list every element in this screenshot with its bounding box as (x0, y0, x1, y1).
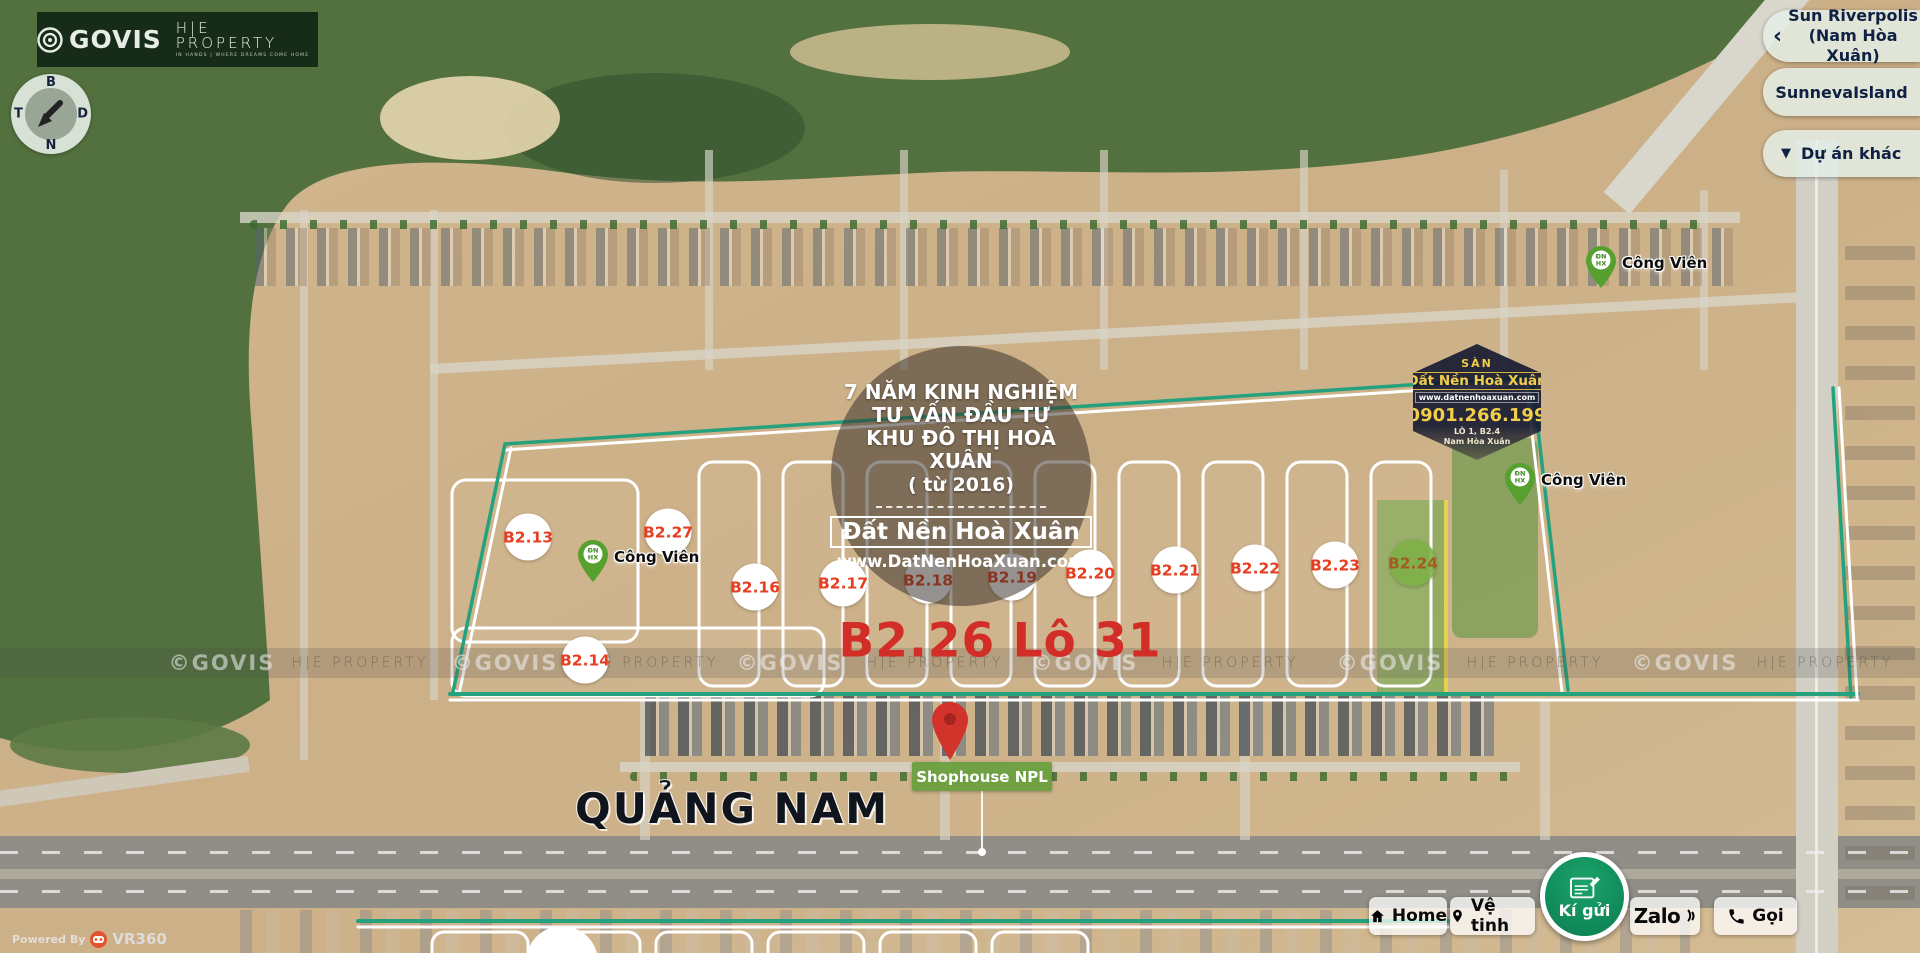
govis-wordmark: GOVIS (69, 25, 162, 54)
info-brand: Đất Nền Hoà Xuân (830, 516, 1092, 548)
watermark-text: H|E PROPERTY (1757, 655, 1894, 671)
park-pin[interactable]: ĐN HX Công Viên (1586, 246, 1616, 292)
watermark-text: H|E PROPERTY (1467, 655, 1604, 671)
vr360-wordmark: VR360 (112, 930, 166, 948)
experience-info-circle: 7 NĂM KINH NGHIỆM TƯ VẤN ĐẦU TƯ KHU ĐÔ T… (831, 346, 1091, 606)
info-line-2: TƯ VẤN ĐẦU TƯ (872, 404, 1050, 427)
shophouse-label: Shophouse NPL (912, 762, 1052, 791)
svg-text:HX: HX (588, 554, 598, 562)
parcel-label-text: B2.17 (818, 574, 868, 592)
svg-text:ĐN: ĐN (1596, 253, 1607, 261)
parcel-label-text: B2.22 (1230, 559, 1280, 577)
svg-text:HX: HX (1515, 477, 1525, 485)
project-name: Dự án khác (1801, 144, 1901, 163)
project-button-other-projects[interactable]: ▼ Dự án khác (1763, 130, 1920, 177)
consign-note-pencil-icon (1569, 873, 1601, 901)
parcel-label[interactable]: B2.16 (732, 564, 779, 611)
govis-logo: GOVIS (37, 25, 162, 54)
parcel-label[interactable]: B2.23 (1312, 542, 1359, 589)
park-pin[interactable]: ĐN HX Công Viên (1505, 463, 1535, 509)
badge-top: SÀN (1461, 357, 1493, 370)
compass-east-label: D (77, 107, 88, 122)
project-button-sun-riverpolis[interactable]: ‹ Sun Riverpolis (Nam Hòa Xuân) (1763, 10, 1920, 62)
parcel-label-text: B2.23 (1310, 556, 1360, 574)
consign-button-label: Kí gửi (1559, 901, 1611, 920)
home-button[interactable]: Home (1369, 897, 1447, 935)
project-name-line1: Sun Riverpolis (1786, 6, 1920, 26)
heproperty-logo: H|E PROPERTY IN HANDS | WHERE DREAMS COM… (176, 21, 318, 59)
divider (876, 506, 1046, 508)
park-pin-icon: ĐN HX (1505, 463, 1535, 505)
chevron-left-icon: ‹ (1773, 24, 1782, 49)
park-pin-icon: ĐN HX (1586, 246, 1616, 288)
marker-leader-line (981, 791, 983, 849)
brand-banner: GOVIS H|E PROPERTY IN HANDS | WHERE DREA… (37, 12, 318, 67)
watermark-text: ©GOVIS (452, 651, 559, 675)
marker-leader-dot (978, 848, 986, 856)
badge-phone: 0901.266.199 (1408, 405, 1547, 426)
parcel-label-text: B2.16 (730, 578, 780, 596)
project-name-line2: (Nam Hòa Xuân) (1786, 26, 1920, 66)
info-website: www.DatNenHoaXuan.com (837, 552, 1086, 571)
govis-logo-icon (37, 27, 63, 53)
watermark-text: H|E PROPERTY (1162, 655, 1299, 671)
phone-icon (1727, 907, 1746, 926)
compass-south-label: N (46, 138, 57, 153)
park-pin-label: Công Viên (614, 548, 699, 566)
selected-location-marker-icon[interactable] (932, 702, 968, 760)
satellite-button-label: Vệ tinh (1471, 896, 1535, 936)
project-button-sunneva-island[interactable]: SunnevaIsland (1763, 68, 1920, 116)
parcel-label[interactable]: B2.13 (505, 514, 552, 561)
watermark-text: ©GOVIS (1632, 651, 1739, 675)
park-pin-icon: ĐN HX (578, 540, 608, 582)
badge-address-1: LÔ 1, B2.4 (1454, 427, 1500, 437)
parcel-label[interactable]: B2.27 (645, 509, 692, 556)
badge-address-2: Nam Hòa Xuân (1444, 437, 1511, 447)
triangle-down-icon: ▼ (1781, 146, 1791, 161)
svg-text:HX: HX (1596, 260, 1606, 268)
info-line-3: KHU ĐÔ THỊ HOÀ XUÂN (839, 427, 1083, 473)
parcel-label[interactable]: B2.21 (1152, 547, 1199, 594)
compass[interactable]: B N D T (11, 74, 91, 154)
compass-north-label: B (46, 75, 56, 90)
watermark-text: H|E PROPERTY (582, 655, 719, 671)
zalo-button[interactable]: Zalo (1630, 897, 1700, 935)
parcel-label-text: B2.27 (643, 523, 693, 541)
consign-button[interactable]: Kí gửi (1540, 852, 1629, 941)
watermark-text: ©GOVIS (1337, 651, 1444, 675)
map-pin-icon (1450, 906, 1465, 926)
watermark-text: ©GOVIS (737, 651, 844, 675)
selected-lot-label: B2.26 Lô 31 (838, 614, 1161, 669)
call-button-label: Gọi (1752, 906, 1783, 926)
agency-badge: SÀN Đất Nền Hoà Xuân www.datnenhoaxuan.c… (1413, 344, 1541, 460)
home-icon (1369, 907, 1386, 926)
parcel-label-text: B2.24 (1388, 554, 1438, 572)
zalo-logo: Zalo (1634, 904, 1681, 928)
call-button[interactable]: Gọi (1714, 897, 1797, 935)
svg-text:ĐN: ĐN (588, 547, 599, 555)
powered-by-prefix: Powered By (12, 933, 85, 946)
compass-west-label: T (14, 107, 23, 122)
badge-brand: Đất Nền Hoà Xuân (1402, 372, 1551, 390)
vr360-logo-icon (90, 931, 107, 948)
parcel-label-text: B2.21 (1150, 561, 1200, 579)
watermark-text: ©GOVIS (169, 651, 276, 675)
powered-by[interactable]: Powered By VR360 (12, 930, 167, 948)
heproperty-wordmark: H|E PROPERTY (176, 21, 318, 51)
parcel-label-text: B2.13 (503, 528, 553, 546)
map-canvas[interactable]: ©GOVISH|E PROPERTY©GOVISH|E PROPERTY©GOV… (0, 0, 1920, 953)
signal-waves-icon (1686, 909, 1696, 923)
badge-website: www.datnenhoaxuan.com (1415, 392, 1540, 403)
home-button-label: Home (1392, 906, 1447, 926)
svg-text:ĐN: ĐN (1515, 470, 1526, 478)
parcel-label[interactable]: B2.24 (1390, 540, 1437, 587)
heproperty-tagline: IN HANDS | WHERE DREAMS COME HOME (176, 54, 318, 59)
project-name: SunnevaIsland (1775, 83, 1907, 102)
parcel-label[interactable]: B2.22 (1232, 545, 1279, 592)
park-pin[interactable]: ĐN HX Công Viên (578, 540, 608, 586)
road-label: QUẢNG NAM (575, 784, 889, 833)
satellite-button[interactable]: Vệ tinh (1450, 897, 1535, 935)
park-pin-label: Công Viên (1622, 254, 1707, 272)
info-line-4: ( từ 2016) (908, 475, 1014, 497)
watermark-text: H|E PROPERTY (292, 655, 429, 671)
park-pin-label: Công Viên (1541, 471, 1626, 489)
info-line-1: 7 NĂM KINH NGHIỆM (844, 381, 1078, 404)
compass-needle-icon (34, 97, 68, 131)
